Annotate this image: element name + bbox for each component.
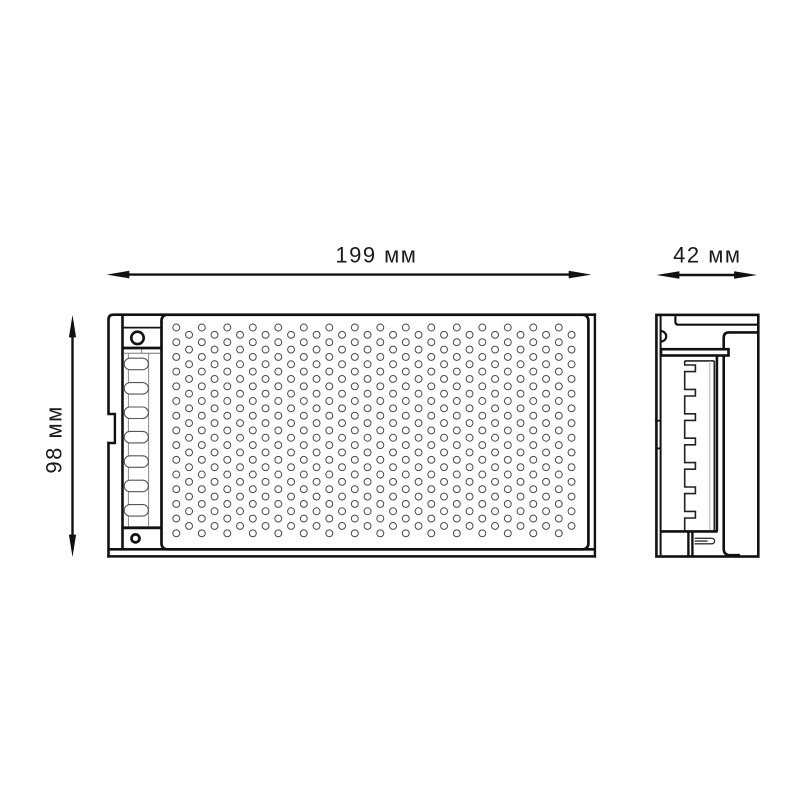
- svg-text:98 мм: 98 мм: [41, 405, 66, 473]
- svg-text:199 мм: 199 мм: [335, 243, 417, 268]
- svg-text:42 мм: 42 мм: [673, 243, 741, 268]
